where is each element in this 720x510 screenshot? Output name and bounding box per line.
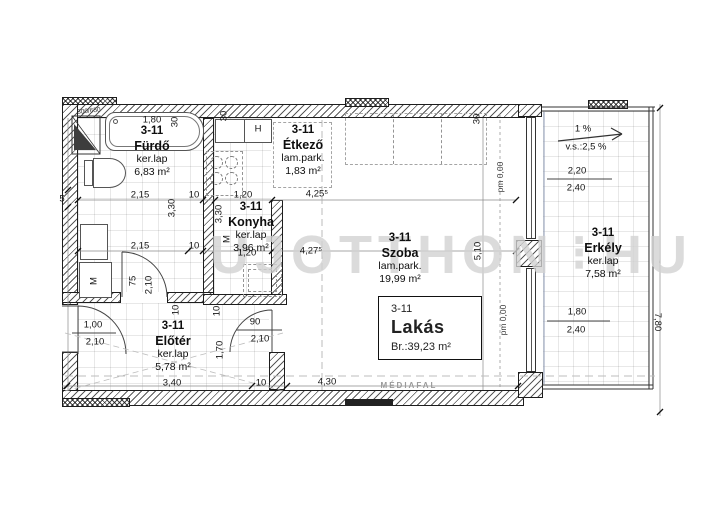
mediafal-bar xyxy=(345,399,393,406)
balcony-door-window xyxy=(526,117,536,239)
vent-strip-balcony xyxy=(588,100,628,109)
dim-label: 2,40 xyxy=(567,183,586,193)
dim-label: MÉDIAFAL xyxy=(381,382,438,390)
pillar-top xyxy=(518,104,542,117)
room-label: 3-11Erkélyker.lap7,58 m² xyxy=(584,227,622,280)
dim-label: 30 xyxy=(472,114,482,125)
vent-strip-topleft xyxy=(62,97,117,105)
dim-label: 2,10 xyxy=(144,276,154,295)
room-floor: ker.lap xyxy=(155,348,191,360)
room-label: 3-11Konyhaker.lap3,96 m² xyxy=(228,201,274,254)
dim-label: 10 xyxy=(189,190,200,200)
floorplan-canvas: 3-11 Lakás Br.:39,23 m² UJOTTHON⋮HU 3-11… xyxy=(0,0,720,510)
room-area: 7,58 m² xyxy=(584,268,622,280)
room-name: Szoba xyxy=(378,246,421,261)
dim-label: 10 xyxy=(256,378,267,388)
dim-label: 4,30 xyxy=(318,377,337,387)
dim-label: 1 % xyxy=(575,124,591,134)
wardrobe-divider xyxy=(441,114,442,164)
toilet-tank xyxy=(84,160,93,186)
room-area: 5,78 m² xyxy=(155,361,191,373)
room-code: 3-11 xyxy=(155,320,191,334)
dim-label: 3,30 xyxy=(214,205,224,224)
pillar-bottom xyxy=(518,372,543,398)
unit-name: Lakás xyxy=(391,316,481,339)
dim-label: 2,10 xyxy=(86,337,105,347)
room-label: 3-11Fürdőker.lap6,83 m² xyxy=(134,125,170,178)
room-floor: ker.lap xyxy=(228,229,274,241)
wall-left-upper xyxy=(62,104,78,305)
dim-label: 7,80 xyxy=(652,313,662,332)
toilet-bowl xyxy=(93,158,126,188)
wardrobe-outline xyxy=(345,113,487,165)
unit-area: Br.:39,23 m² xyxy=(391,340,481,354)
room-name: Előtér xyxy=(155,334,191,349)
hob-burner xyxy=(225,156,238,169)
room-name: Étkező xyxy=(281,138,324,153)
hob-burner xyxy=(210,172,223,185)
dim-label: 2,40 xyxy=(567,325,586,335)
room-floor: lam.park. xyxy=(378,260,421,272)
hob-burner xyxy=(210,156,223,169)
unit-summary-box: 3-11 Lakás Br.:39,23 m² xyxy=(378,296,482,360)
dim-label: 10 xyxy=(212,306,222,317)
dim-label: 10 xyxy=(189,241,200,251)
room-label: 3-11Szobalam.park.19,99 m² xyxy=(378,232,421,285)
dim-label: H xyxy=(255,124,262,134)
room-name: Fürdő xyxy=(134,139,170,154)
washbasin-cabinet xyxy=(80,224,108,260)
dim-label: 1,70 xyxy=(215,341,225,360)
bathtub-drain xyxy=(113,119,118,124)
room-label: 3-11Előtérker.lap5,78 m² xyxy=(155,320,191,373)
dim-label: 3,30 xyxy=(167,199,177,218)
dim-label: M xyxy=(89,277,99,285)
hob-burner xyxy=(225,172,238,185)
dim-label: 1,80 xyxy=(143,115,162,125)
wall-bottom xyxy=(62,390,524,406)
dim-label: 30 xyxy=(170,117,180,128)
dim-label: 2,20 xyxy=(568,166,587,176)
room-name: Konyha xyxy=(228,215,274,230)
wall-eloter-szoba xyxy=(269,352,285,390)
dim-label: 1,00 xyxy=(84,320,103,330)
dim-label: 1,80 xyxy=(568,307,587,317)
room-floor: lam.park. xyxy=(281,152,324,164)
dim-label: 1,20 xyxy=(238,248,257,258)
dim-label: 5,10 xyxy=(473,242,483,261)
dim-label: v.s.:2,5 % xyxy=(565,142,606,152)
dim-label: 1,20 xyxy=(234,190,253,200)
room-label: 3-11Étkezőlam.park.1,83 m² xyxy=(281,124,324,177)
dim-label: 3,40 xyxy=(163,378,182,388)
room-area: 19,99 m² xyxy=(378,273,421,285)
dim-label: 5 xyxy=(59,194,64,204)
room-code: 3-11 xyxy=(228,201,274,215)
vent-strip-topcenter xyxy=(345,98,389,107)
wardrobe-divider xyxy=(393,114,394,164)
room-area: 1,83 m² xyxy=(281,165,324,177)
unit-code: 3-11 xyxy=(391,302,481,316)
dim-label: 10 xyxy=(171,305,181,316)
dim-label: pm 0,00 xyxy=(499,305,508,336)
room-floor: ker.lap xyxy=(134,153,170,165)
room-area: 6,83 m² xyxy=(134,166,170,178)
room-code: 3-11 xyxy=(584,227,622,241)
dim-label: 2,15 xyxy=(131,241,150,251)
dim-label: 90 xyxy=(250,317,261,327)
dim-label: 4,25⁵ xyxy=(306,189,328,199)
room-code: 3-11 xyxy=(378,232,421,246)
dim-label: 75 xyxy=(128,276,138,287)
kitchen-cabinet-divider xyxy=(244,120,245,142)
window-glass-line xyxy=(531,118,532,238)
dim-label: 2,10 xyxy=(251,334,270,344)
vent-strip-bottomleft xyxy=(62,398,130,407)
dim-label: M xyxy=(222,235,232,243)
room-code: 3-11 xyxy=(281,124,324,138)
dim-label: 30 xyxy=(219,111,229,122)
room-floor: ker.lap xyxy=(584,255,622,267)
dim-label: 4,27⁵ xyxy=(300,246,322,256)
room-name: Erkély xyxy=(584,241,622,256)
kitchen-cabinet xyxy=(215,119,272,143)
room-code: 3-11 xyxy=(134,125,170,139)
dim-label: 2,15 xyxy=(131,190,150,200)
dim-label: pm 0,00 xyxy=(496,162,505,193)
